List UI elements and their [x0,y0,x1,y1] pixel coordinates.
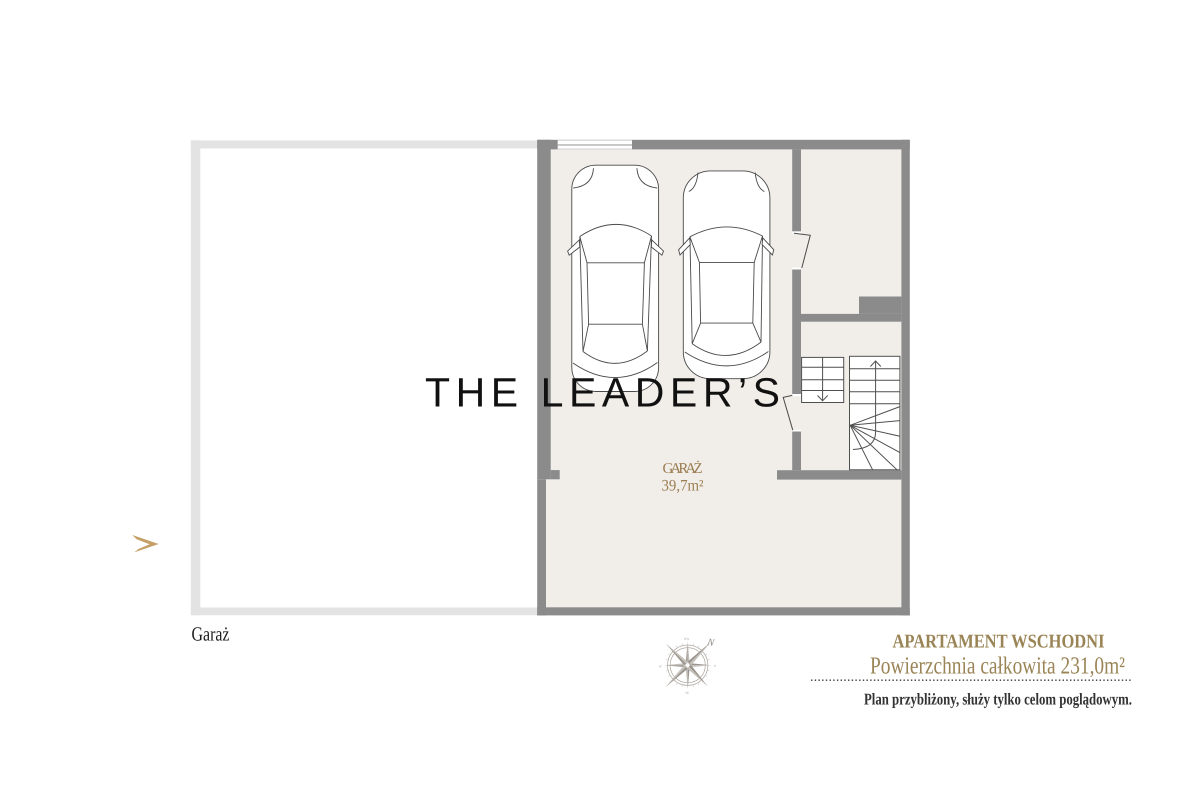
svg-text:APARTAMENT WSCHODNI: APARTAMENT WSCHODNI [893,632,1105,653]
svg-text:THE LEADER’S: THE LEADER’S [425,370,780,416]
svg-text:Garaż: Garaż [192,624,230,646]
svg-text:Plan przybliżony, służy tylko: Plan przybliżony, służy tylko celom pogl… [864,690,1132,709]
svg-text:GARAŻ: GARAŻ [663,460,703,477]
svg-text:39,7m²: 39,7m² [662,477,704,494]
svg-text:Powierzchnia całkowita 231,0m²: Powierzchnia całkowita 231,0m² [870,653,1125,680]
svg-text:NW: NW [684,637,689,641]
svg-text:E: E [714,664,716,668]
svg-text:N: N [705,637,716,650]
svg-text:SE: SE [685,691,689,695]
svg-text:W: W [659,665,662,669]
